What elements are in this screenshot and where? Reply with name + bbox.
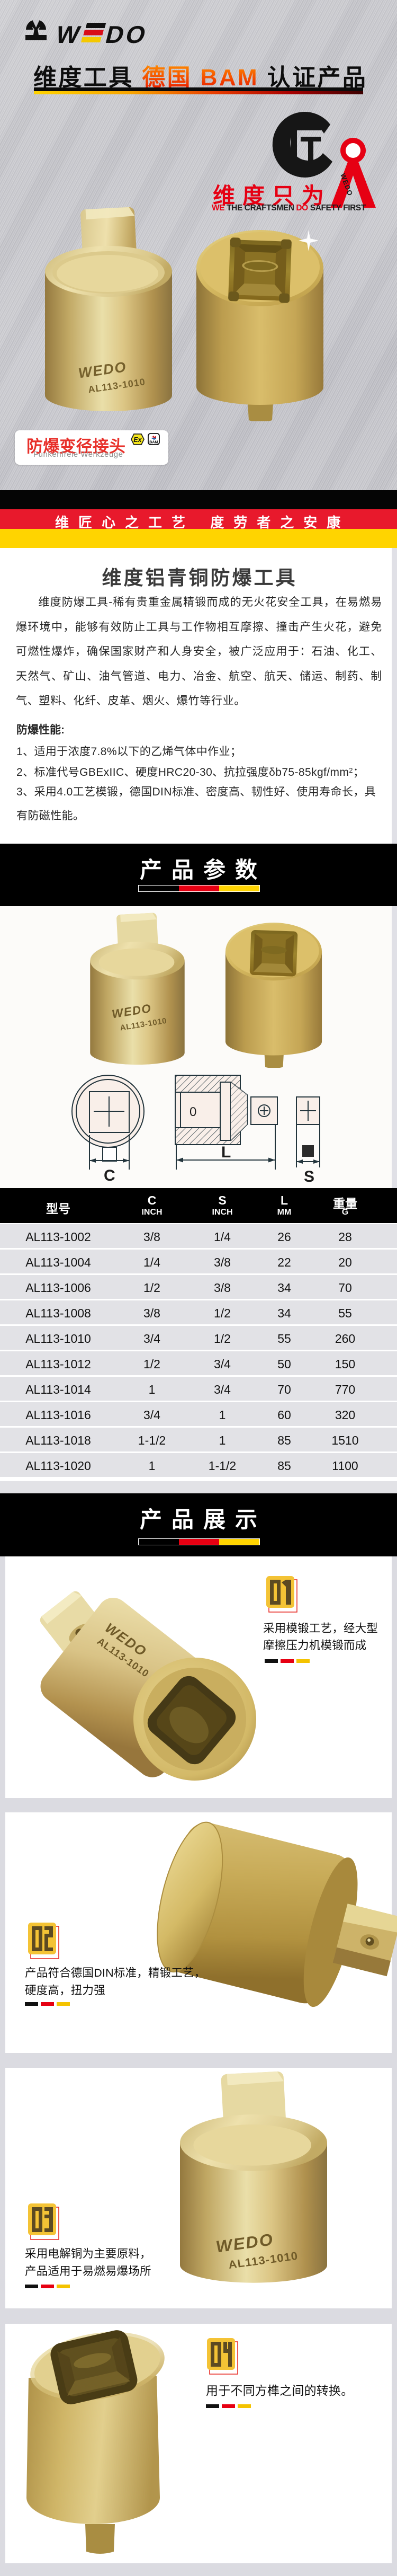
- svg-text:W: W: [53, 21, 83, 47]
- svg-text:Ex: Ex: [133, 436, 142, 444]
- svg-text:S: S: [304, 1168, 314, 1185]
- svg-text:L: L: [221, 1144, 231, 1161]
- svg-text:D: D: [103, 21, 127, 47]
- svg-text:BAM: BAM: [149, 440, 158, 445]
- svg-text:O: O: [123, 21, 145, 47]
- svg-text:C: C: [104, 1167, 115, 1184]
- svg-text:0: 0: [190, 1105, 196, 1119]
